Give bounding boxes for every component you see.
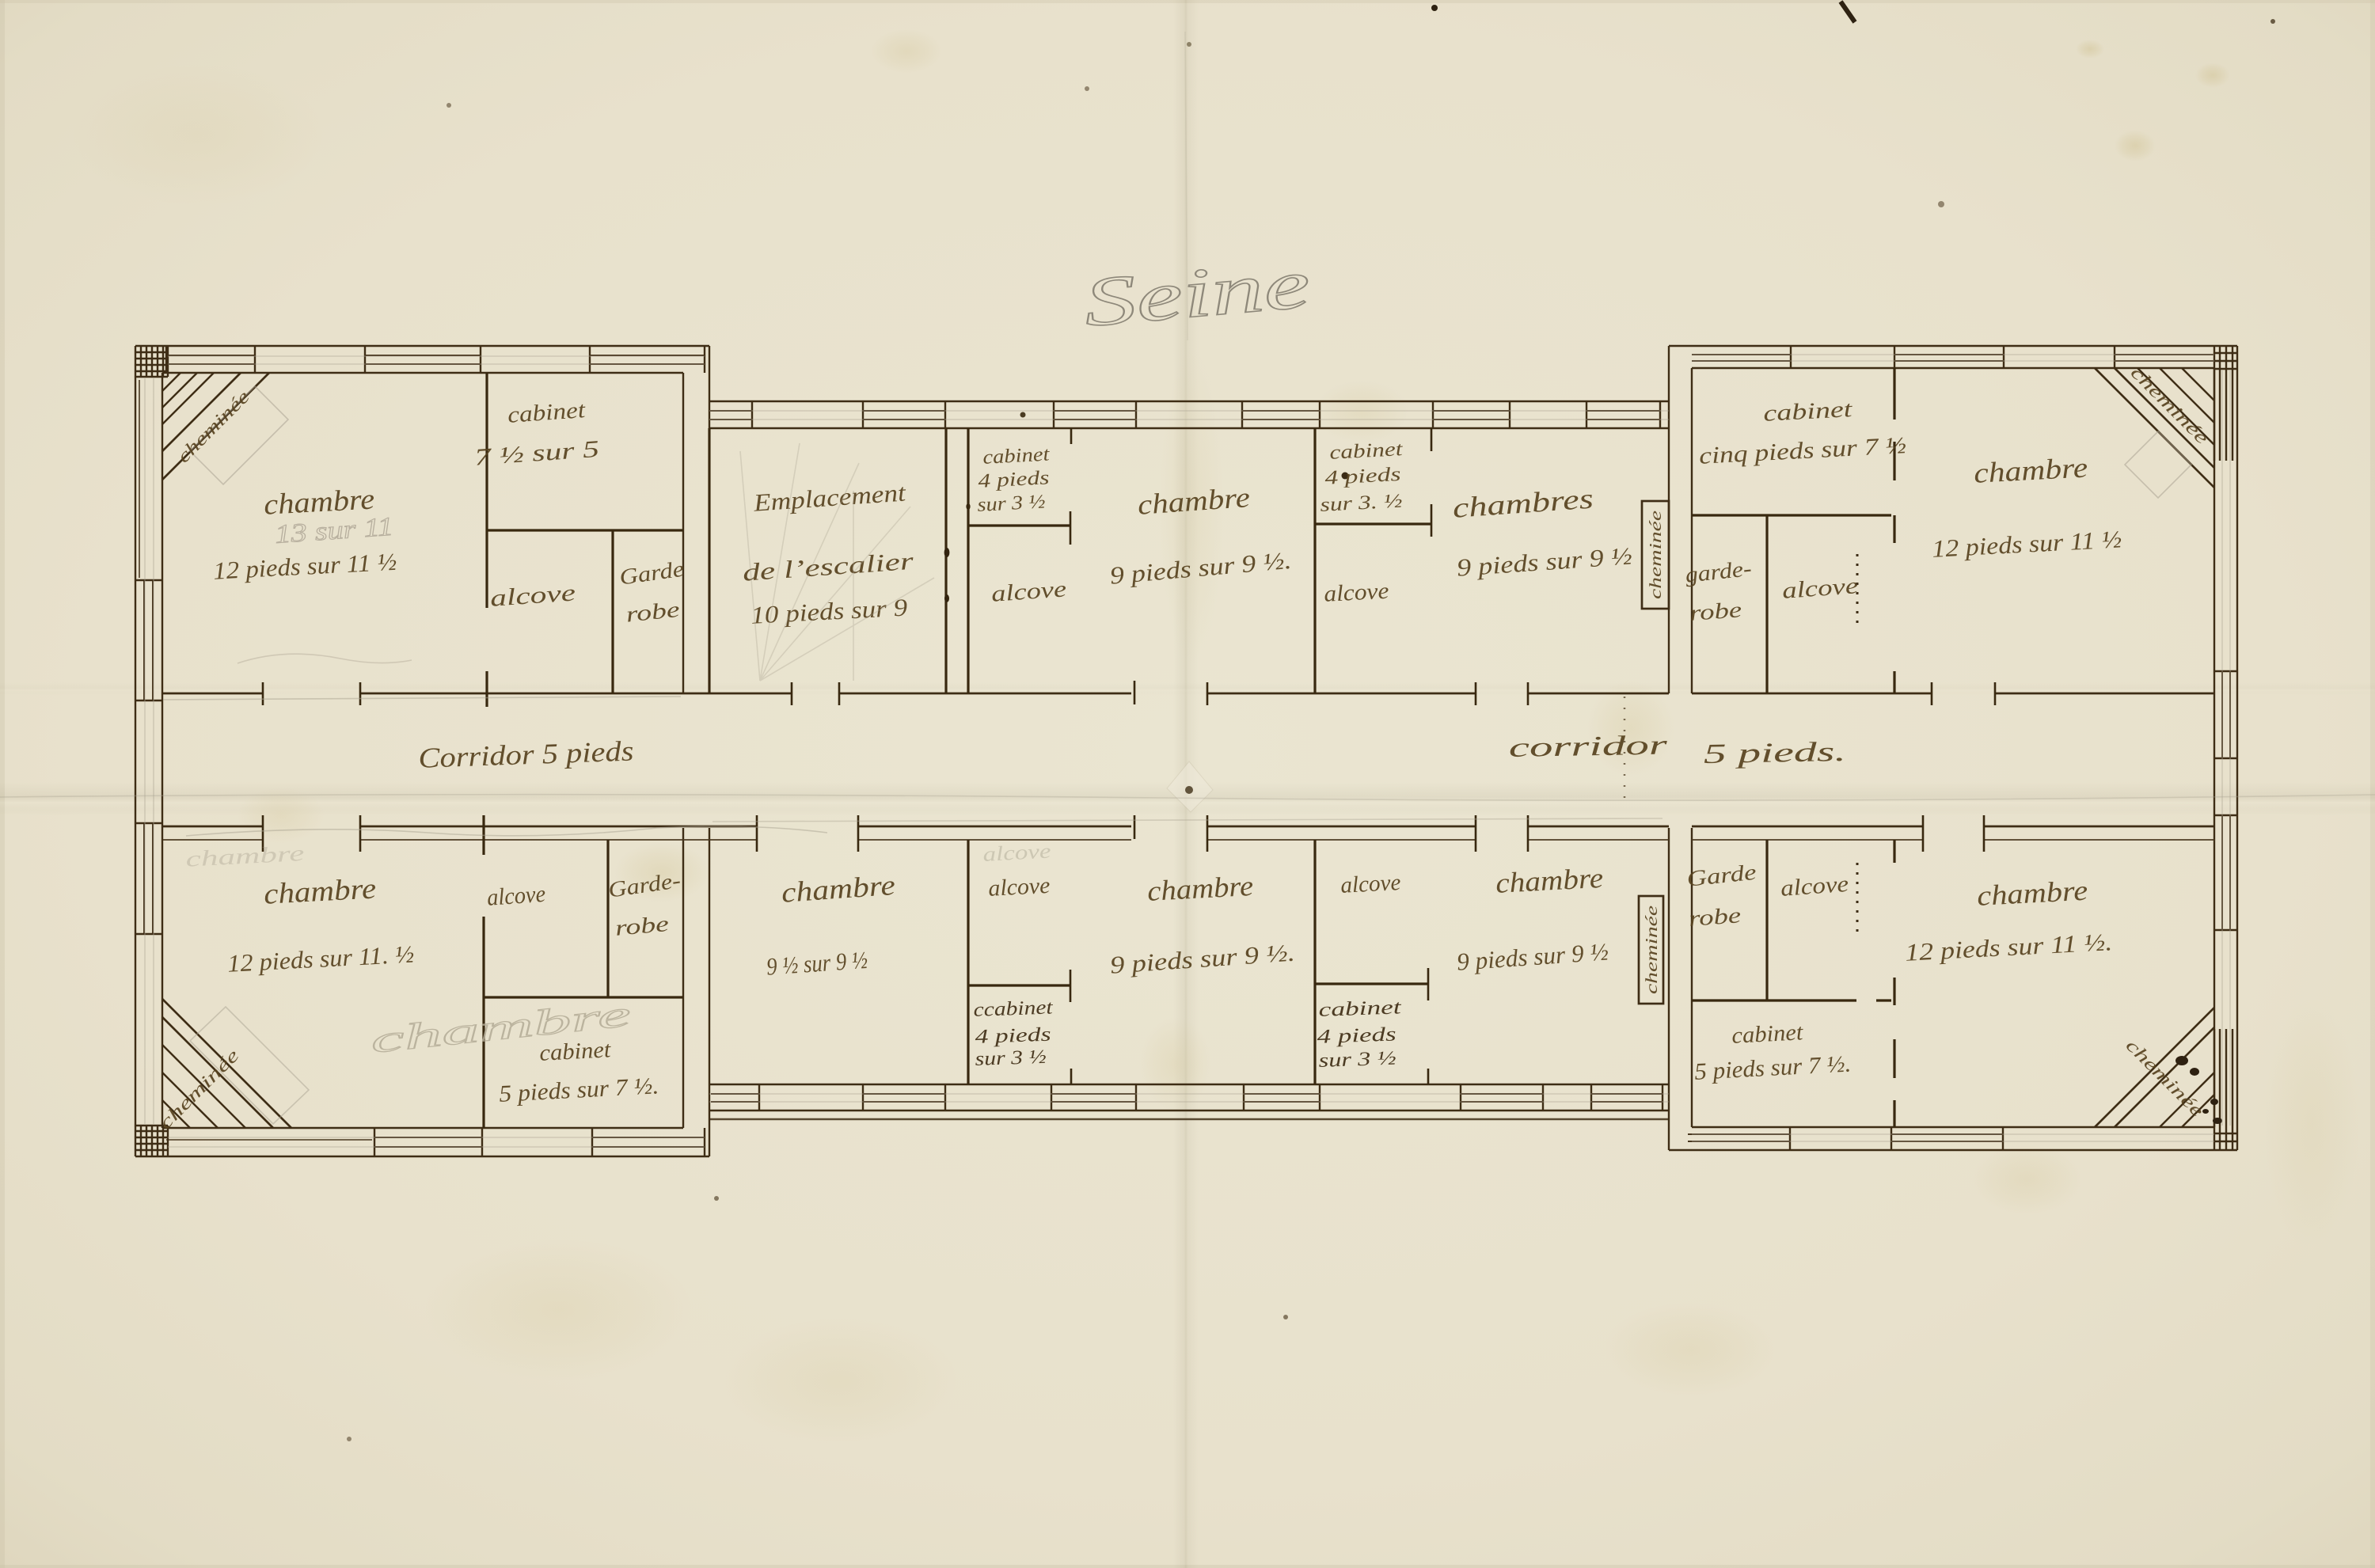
svg-text:cabinet: cabinet — [1329, 439, 1404, 464]
svg-text:alcove: alcove — [990, 576, 1067, 607]
svg-text:alcove: alcove — [982, 840, 1051, 866]
svg-text:cabinet: cabinet — [1731, 1019, 1805, 1049]
svg-text:4 pieds: 4 pieds — [978, 467, 1050, 492]
svg-text:cabinet: cabinet — [982, 443, 1051, 468]
svg-text:sur 3 ½: sur 3 ½ — [977, 491, 1047, 515]
svg-text:alcove: alcove — [1324, 579, 1390, 607]
svg-text:alcove: alcove — [1781, 573, 1859, 604]
svg-text:sur 3 ½: sur 3 ½ — [975, 1046, 1047, 1070]
svg-text:alcove: alcove — [1780, 871, 1849, 902]
svg-text:ccabinet: ccabinet — [973, 997, 1054, 1021]
svg-text:cabinet: cabinet — [1318, 997, 1402, 1021]
svg-text:chambre: chambre — [1973, 451, 2088, 488]
svg-text:robe: robe — [1689, 598, 1742, 626]
svg-text:robe: robe — [614, 912, 670, 941]
svg-text:alcove: alcove — [486, 881, 546, 911]
svg-text:corridor: corridor — [1508, 730, 1667, 763]
svg-text:alcove: alcove — [988, 873, 1051, 902]
svg-text:sur 3 ½: sur 3 ½ — [1318, 1048, 1396, 1072]
svg-text:chambre: chambre — [1146, 870, 1254, 907]
svg-text:4 pieds: 4 pieds — [1317, 1023, 1396, 1047]
svg-text:cabinet: cabinet — [1763, 397, 1854, 427]
svg-text:4 pieds: 4 pieds — [975, 1024, 1051, 1048]
svg-text:sur 3. ½: sur 3. ½ — [1320, 490, 1404, 515]
svg-text:chambre: chambre — [1495, 862, 1604, 899]
svg-text:robe: robe — [1688, 903, 1742, 932]
svg-text:alcove: alcove — [1340, 870, 1402, 898]
svg-text:4 pieds: 4 pieds — [1324, 464, 1401, 489]
svg-text:chambre: chambre — [263, 872, 377, 910]
svg-text:5 pieds.: 5 pieds. — [1703, 736, 1846, 769]
svg-text:chambre: chambre — [1976, 875, 2088, 912]
svg-text:cheminée: cheminée — [1646, 511, 1665, 599]
svg-text:cheminée: cheminée — [1642, 905, 1661, 994]
